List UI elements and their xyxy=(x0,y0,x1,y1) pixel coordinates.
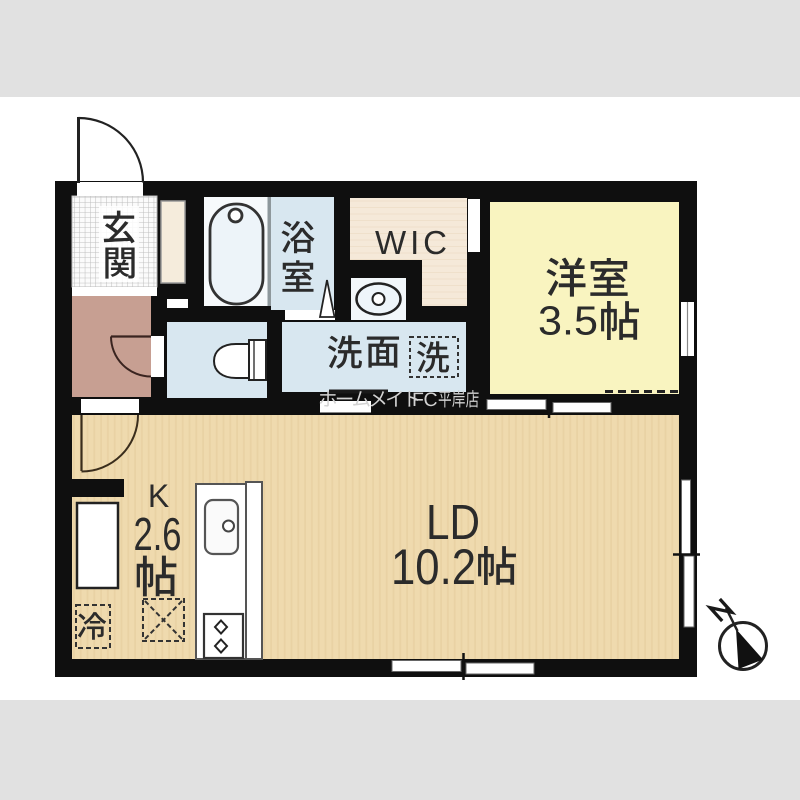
svg-text:3.5: 3.5 xyxy=(538,298,598,344)
svg-text:10.2: 10.2 xyxy=(391,539,476,595)
svg-text:WIC: WIC xyxy=(375,224,447,261)
svg-text:2.6: 2.6 xyxy=(134,508,182,560)
